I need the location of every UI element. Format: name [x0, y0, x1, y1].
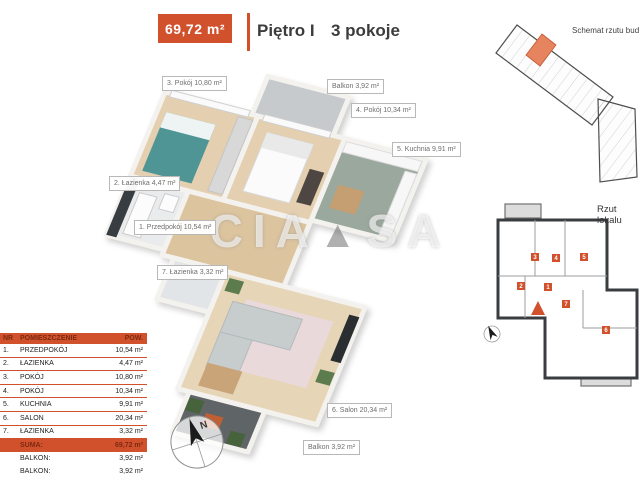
- compass-group: N: [168, 412, 228, 474]
- row-nr: 1.: [0, 347, 20, 354]
- row-area: 4,47 m²: [103, 360, 147, 367]
- room-label-balkon-gora: Balkon 3,92 m²: [327, 79, 384, 94]
- row-nr: 6.: [0, 415, 20, 422]
- row-nr: 3.: [0, 374, 20, 381]
- col-header-nr: NR: [0, 335, 20, 342]
- table-header-row: NR POMIESZCZENIE POW.: [0, 333, 147, 344]
- row-name: POKÓJ: [20, 388, 103, 395]
- table-row: 2. ŁAZIENKA 4,47 m²: [0, 358, 147, 372]
- table-row: 7. ŁAZIENKA 3,32 m²: [0, 426, 147, 440]
- mini-compass-icon: [483, 322, 503, 344]
- room-label-lazienka7: 7. Łazienka 3,32 m²: [157, 265, 228, 280]
- row-nr: 2.: [0, 360, 20, 367]
- row-nr: 4.: [0, 388, 20, 395]
- row-area: 10,54 m²: [103, 347, 147, 354]
- building-outline-group: [496, 25, 637, 182]
- table-row: 1. PRZEDPOKÓJ 10,54 m²: [0, 344, 147, 358]
- room-label-przedpokoj: 1. Przedpokój 10,54 m²: [134, 220, 216, 235]
- unit-plan-group: 3452176: [483, 204, 637, 386]
- mini-balcony-top: [505, 204, 541, 218]
- row-nr: 5.: [0, 401, 20, 408]
- room-label-kuchnia: 5. Kuchnia 9,91 m²: [392, 142, 461, 157]
- row-name: POKÓJ: [20, 374, 103, 381]
- row-name: KUCHNIA: [20, 401, 103, 408]
- building-wing-right-detail: [598, 99, 637, 182]
- balkon-label: BALKON:: [20, 455, 103, 462]
- floor-plan-page: 69,72 m² Piętro I 3 pokoje CIA▲SA 3. Pok…: [0, 0, 640, 480]
- row-name: ŁAZIENKA: [20, 360, 103, 367]
- col-header-pow: POW.: [103, 335, 147, 342]
- row-area: 3,32 m²: [103, 428, 147, 435]
- row-area: 10,34 m²: [103, 388, 147, 395]
- building-wing-upper-detail: [496, 25, 613, 125]
- building-schematic-title: Schemat rzutu bud: [572, 26, 640, 35]
- suma-label: SUMA:: [20, 442, 103, 449]
- row-area: 9,91 m²: [103, 401, 147, 408]
- room-label-salon: 6. Salon 20,34 m²: [327, 403, 392, 418]
- room-table: NR POMIESZCZENIE POW. 1. PRZEDPOKÓJ 10,5…: [0, 333, 147, 477]
- room-label-pokoj4: 4. Pokój 10,34 m²: [351, 103, 416, 118]
- table-row: 3. POKÓJ 10,80 m²: [0, 371, 147, 385]
- unit-2d-plan: 3452176: [483, 198, 640, 388]
- table-row: 6. SALON 20,34 m²: [0, 412, 147, 426]
- table-balkon-row: BALKON: 3,92 m²: [0, 465, 147, 478]
- suma-area: 69,72 m²: [103, 442, 147, 449]
- iso-apartment-group: [106, 76, 426, 452]
- table-row: 5. KUCHNIA 9,91 m²: [0, 398, 147, 412]
- row-area: 10,80 m²: [103, 374, 147, 381]
- compass: N: [168, 412, 228, 474]
- row-name: ŁAZIENKA: [20, 428, 103, 435]
- row-name: PRZEDPOKÓJ: [20, 347, 103, 354]
- table-balkon-row: BALKON: 3,92 m²: [0, 452, 147, 465]
- room-label-lazienka2: 2. Łazienka 4,47 m²: [109, 176, 180, 191]
- col-header-name: POMIESZCZENIE: [20, 335, 103, 342]
- row-area: 20,34 m²: [103, 415, 147, 422]
- row-name: SALON: [20, 415, 103, 422]
- balkon-area: 3,92 m²: [103, 468, 147, 475]
- balkon-area: 3,92 m²: [103, 455, 147, 462]
- row-nr: 7.: [0, 428, 20, 435]
- table-suma-row: SUMA: 69,72 m²: [0, 439, 147, 452]
- balkon-label: BALKON:: [20, 468, 103, 475]
- room-label-pokoj3: 3. Pokój 10,80 m²: [162, 76, 227, 91]
- unit-plan-title: Rzut lokalu: [597, 204, 640, 226]
- room-label-balkon-dol: Balkon 3,92 m²: [303, 440, 360, 455]
- table-row: 4. POKÓJ 10,34 m²: [0, 385, 147, 399]
- building-schematic: [478, 14, 640, 194]
- mini-apartment-outline: [498, 220, 637, 378]
